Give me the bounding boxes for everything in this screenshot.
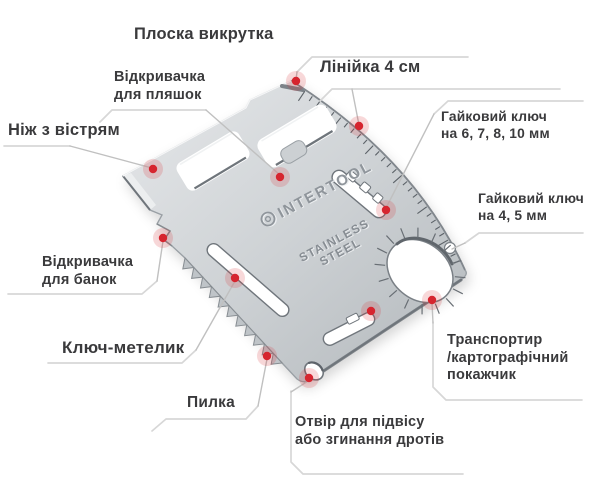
product-diagram: INTERTOOL INTERTOOL STAINLESS STEEL STAI… — [0, 0, 600, 487]
marker-ruler — [355, 122, 363, 130]
marker-bottle-opener — [276, 173, 284, 181]
callout-butterfly-wrench: Ключ-метелик — [62, 338, 184, 359]
callout-knife: Ніж з вістрям — [8, 120, 120, 140]
marker-protractor — [428, 296, 436, 304]
marker-flat-screwdriver — [292, 77, 300, 85]
marker-wrench-6-10 — [382, 206, 390, 214]
callout-saw: Пилка — [187, 394, 235, 413]
callout-flat-screwdriver: Плоска викрутка — [134, 24, 273, 44]
callout-can-opener: Відкривачка для банок — [42, 254, 133, 289]
callout-hang-hole: Отвір для підвісу або згинання дротів — [295, 414, 444, 449]
callout-protractor: Транспортир /картографічний покажчик — [447, 332, 568, 385]
marker-can-opener — [159, 234, 167, 242]
callout-wrench-4-5: Гайковий ключ на 4, 5 мм — [478, 191, 584, 225]
marker-butterfly-wrench — [231, 274, 239, 282]
callout-ruler: Лінійка 4 см — [320, 57, 420, 77]
marker-saw — [263, 352, 271, 360]
marker-hang-hole — [305, 374, 313, 382]
callout-wrench-6-10: Гайковий ключ на 6, 7, 8, 10 мм — [441, 109, 550, 143]
callout-bottle-opener: Відкривачка для пляшок — [114, 69, 205, 104]
marker-wrench-4-5-slot — [367, 307, 375, 315]
marker-knife — [149, 165, 157, 173]
